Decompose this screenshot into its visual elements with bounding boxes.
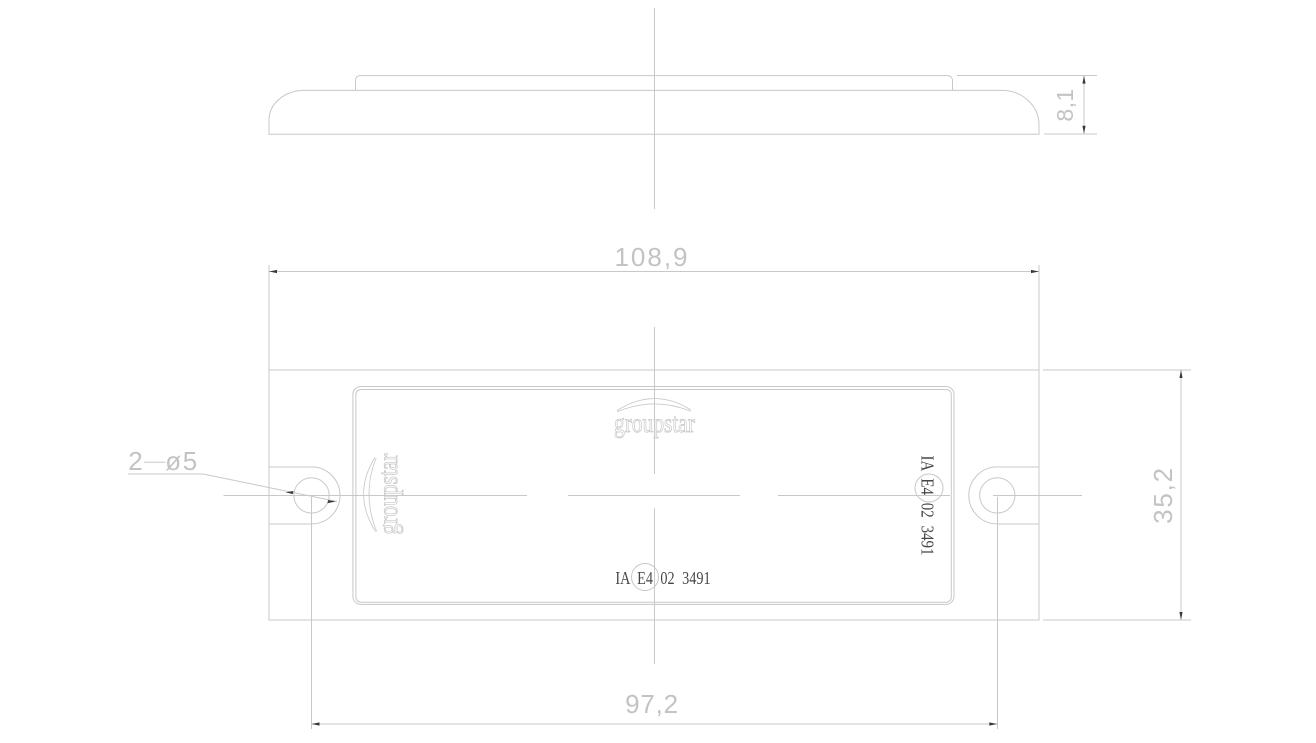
svg-text:8,1: 8,1 (1052, 88, 1078, 121)
svg-text:IA E4 02 3491: IA E4 02 3491 (917, 456, 938, 556)
svg-text:108,9: 108,9 (614, 242, 689, 272)
svg-text:groupstar: groupstar (614, 409, 695, 439)
svg-text:35,2: 35,2 (1148, 466, 1178, 524)
svg-text:groupstar: groupstar (374, 454, 404, 535)
svg-text:2: 2 (128, 446, 142, 476)
svg-text:97,2: 97,2 (625, 689, 679, 719)
svg-text:ø5: ø5 (165, 446, 199, 476)
svg-text:IA E4 02 3491: IA E4 02 3491 (615, 568, 710, 588)
